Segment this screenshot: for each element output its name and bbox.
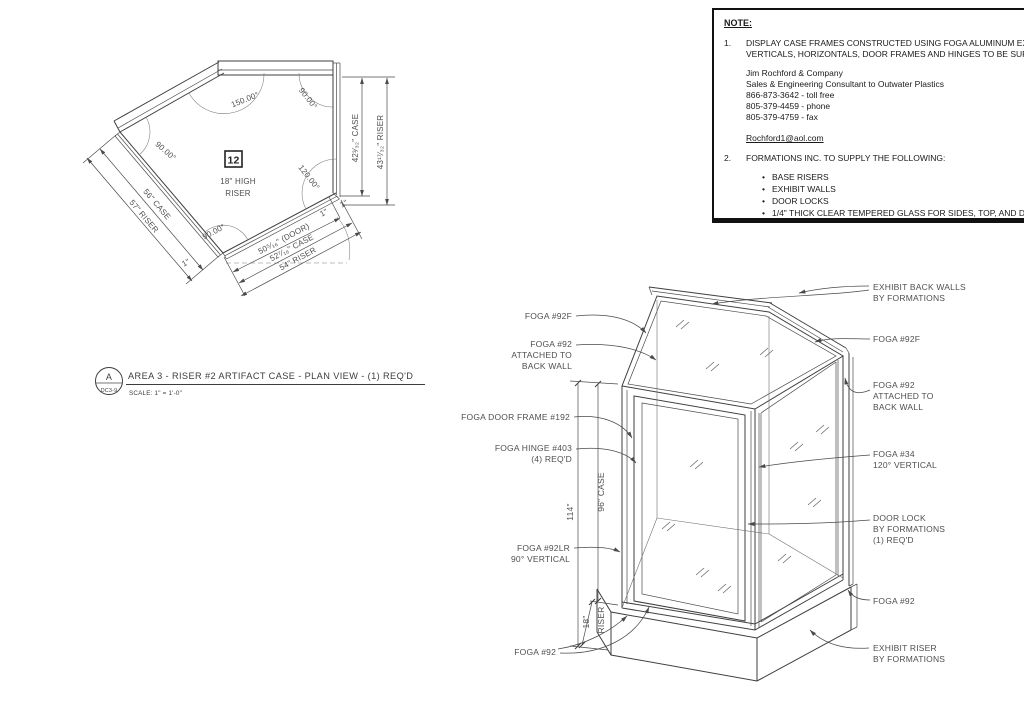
note-item-1-number: 1.	[724, 38, 746, 60]
iso-view-drawing: 114" 96" CASE 18" RISER FOGA #92F FOGA #…	[461, 282, 966, 681]
callout-foga-92-bottom-left: FOGA #92	[514, 647, 556, 657]
angle-90-left-label: 90.00°	[153, 140, 177, 163]
callout-back-walls-1: EXHIBIT BACK WALLS	[873, 282, 966, 292]
glass-hatch-icon	[816, 425, 829, 434]
iso-dim-riser: 18"	[581, 615, 591, 628]
plan-view-drawing: 150.00° 90.00° 90.00° 120.00° 90.00° 56"…	[83, 61, 425, 397]
glass-hatch-icon	[690, 460, 703, 469]
dim-case-right: 42³⁄₃₂" CASE	[351, 114, 360, 163]
note-heading: NOTE:	[724, 18, 1024, 28]
dim-one-inch-right: 1"	[318, 207, 329, 219]
callout-door-lock-3: (1) REQ'D	[873, 535, 914, 545]
angle-90-top-right-label: 90.00°	[297, 86, 319, 111]
note-bullet-exhibit-walls: EXHIBIT WALLS	[762, 184, 1024, 195]
glass-hatch-icon	[696, 568, 709, 577]
callout-door-lock-1: DOOR LOCK	[873, 513, 926, 523]
angle-120-label: 120.00°	[296, 163, 321, 191]
plan-view-title: AREA 3 - RISER #2 ARTIFACT CASE - PLAN V…	[128, 371, 413, 381]
callout-back-walls-2: BY FORMATIONS	[873, 293, 945, 303]
iso-case-body	[622, 356, 843, 630]
note-item-2: 2. FORMATIONS INC. TO SUPPLY THE FOLLOWI…	[724, 153, 1024, 164]
dim-one-inch-left: 1"	[180, 257, 191, 269]
note-contact-block: Jim Rochford & Company Sales & Engineeri…	[746, 68, 1024, 123]
note-bullet-list: BASE RISERS EXHIBIT WALLS DOOR LOCKS 1/4…	[762, 172, 1024, 223]
callout-foga-92-left-1: FOGA #92	[530, 339, 572, 349]
note-item-2-text: FORMATIONS INC. TO SUPPLY THE FOLLOWING:	[746, 153, 945, 164]
glass-hatch-icon	[718, 584, 731, 593]
glass-hatch-icon	[778, 554, 791, 563]
callout-foga-92lr-1: FOGA #92LR	[517, 543, 570, 553]
callout-hinge-2: (4) REQ'D	[531, 454, 572, 464]
callout-foga-92-bottom-right: FOGA #92	[873, 596, 915, 606]
iso-riser-base	[597, 584, 857, 681]
iso-dim-riser-word: RISER	[596, 607, 606, 634]
callout-foga-92-right-2: ATTACHED TO	[873, 391, 934, 401]
plan-bottom-dimensions: 50⁵⁄₁₆" (DOOR) 52⁷⁄₁₆" CASE 54" RISER 1"…	[180, 197, 362, 296]
callout-foga-92lr-2: 90° VERTICAL	[511, 554, 570, 564]
tag-line1: 18" HIGH	[220, 177, 256, 186]
iso-callouts-right: EXHIBIT BACK WALLS BY FORMATIONS FOGA #9…	[712, 282, 966, 664]
glass-hatch-icon	[676, 320, 689, 329]
note-bullet-base-risers: BASE RISERS	[762, 172, 1024, 183]
tag-line2: RISER	[225, 189, 250, 198]
plan-riser-tag: 12 18" HIGH RISER	[220, 151, 256, 198]
callout-door-frame: FOGA DOOR FRAME #192	[461, 412, 570, 422]
angle-150-label: 150.00°	[230, 90, 260, 109]
plan-title-block: A DC3-9 AREA 3 - RISER #2 ARTIFACT CASE …	[96, 368, 426, 398]
callout-foga-34-1: FOGA #34	[873, 449, 915, 459]
angle-90-bottom-label: 90.00°	[201, 222, 227, 241]
iso-door-frame	[634, 396, 745, 621]
detail-sheet: DC3-9	[101, 388, 118, 394]
door-swing-arc	[337, 217, 350, 260]
callout-exhibit-riser-2: BY FORMATIONS	[873, 654, 945, 664]
drawing-sheet: { "note_box": { "heading": "NOTE:", "ite…	[0, 0, 1024, 723]
plan-left-dimensions: 56" CASE 57" RISER	[83, 135, 219, 284]
glass-hatch-icon	[706, 362, 719, 371]
note-item-1: 1. DISPLAY CASE FRAMES CONSTRUCTED USING…	[724, 38, 1024, 60]
note-contact-email: Rochford1@aol.com	[746, 133, 1024, 143]
callout-exhibit-riser-1: EXHIBIT RISER	[873, 643, 937, 653]
note-bullet-glass: 1/4" THICK CLEAR TEMPERED GLASS FOR SIDE…	[762, 208, 1024, 223]
note-item-1-text: DISPLAY CASE FRAMES CONSTRUCTED USING FO…	[746, 38, 1024, 60]
note-bullet-text: 1/4" THICK CLEAR TEMPERED GLASS FOR SIDE…	[772, 208, 1024, 223]
note-bullet-text: DOOR LOCKS	[772, 196, 829, 207]
iso-dim-case: 96" CASE	[596, 472, 606, 512]
dim-riser-right: 43¹⁷⁄₃₂" RISER	[376, 115, 385, 169]
plan-view-scale: SCALE: 1" = 1'-0"	[129, 390, 182, 397]
callout-foga-92-left-2: ATTACHED TO	[511, 350, 572, 360]
detail-letter: A	[106, 372, 112, 382]
callout-door-lock-2: BY FORMATIONS	[873, 524, 945, 534]
iso-dim-total: 114"	[565, 503, 575, 520]
callout-foga-92-right-1: FOGA #92	[873, 380, 915, 390]
iso-case-top	[622, 296, 843, 409]
glass-hatch-icon	[808, 498, 821, 507]
callout-foga-92f-left: FOGA #92F	[525, 311, 572, 321]
note-bullet-text: EXHIBIT WALLS	[772, 184, 836, 195]
note-bullet-door-locks: DOOR LOCKS	[762, 196, 1024, 207]
glass-hatch-icon	[662, 522, 675, 531]
tag-number: 12	[227, 155, 239, 167]
callout-foga-92f-right: FOGA #92F	[873, 334, 920, 344]
callout-foga-92-left-3: BACK WALL	[522, 361, 572, 371]
callout-hinge-1: FOGA HINGE #403	[495, 443, 572, 453]
glass-hatch-icon	[790, 442, 803, 451]
note-item-2-number: 2.	[724, 153, 746, 164]
iso-interior-lines	[622, 300, 843, 608]
callout-foga-92-right-3: BACK WALL	[873, 402, 923, 412]
dim-one-inch-corner: 1"	[338, 198, 349, 210]
glass-hatch-icon	[760, 348, 773, 357]
note-bullet-text: BASE RISERS	[772, 172, 829, 183]
callout-foga-34-2: 120° VERTICAL	[873, 460, 937, 470]
plan-right-dimensions: 42³⁄₃₂" CASE 43¹⁷⁄₃₂" RISER	[340, 77, 395, 205]
note-box: NOTE: 1. DISPLAY CASE FRAMES CONSTRUCTED…	[712, 8, 1024, 223]
